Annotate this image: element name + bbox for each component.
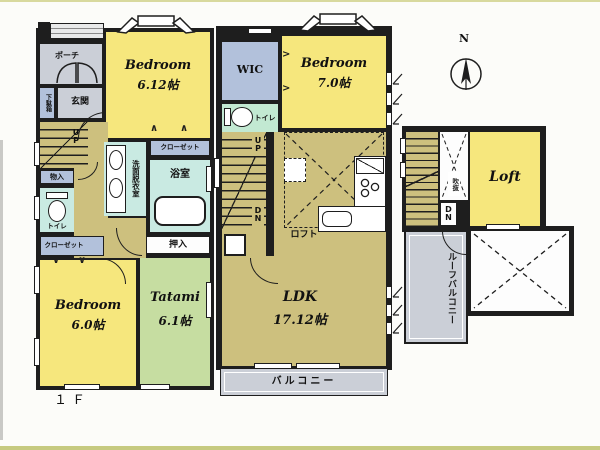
- casement-swing-icon: [392, 284, 404, 340]
- window: [34, 196, 40, 220]
- bedroom-612-size: 6.12帖: [112, 78, 204, 94]
- void-label: 吹抜: [448, 172, 460, 196]
- closet-1f-top-label: クローゼット: [150, 140, 210, 156]
- window: [206, 166, 212, 192]
- washroom-label: 洗面脱衣室: [128, 146, 142, 212]
- bay-window-icon: [112, 13, 200, 35]
- closet-1f-side-label: クローゼット: [42, 237, 86, 255]
- scan-edge-top: [0, 0, 600, 2]
- scan-edge-bottom: [0, 446, 600, 450]
- window: [386, 92, 392, 106]
- window: [386, 112, 392, 126]
- loft-dn-label: DN: [442, 203, 455, 225]
- stairs-2f-dn: DN: [252, 204, 264, 226]
- closet-door-mark: ∧: [150, 124, 158, 134]
- bedroom-70-name: Bedroom: [288, 56, 380, 72]
- compass-north-label: N: [452, 32, 476, 46]
- toilet-1f-label: トイレ: [40, 222, 74, 231]
- toilet-tank-icon: [46, 192, 68, 199]
- kitchen-sink-icon: [322, 211, 352, 227]
- window: [386, 286, 392, 299]
- range-hood-icon: [356, 158, 384, 174]
- stairs-loft: [406, 132, 438, 226]
- toilet-2f-label: トイレ: [252, 112, 278, 124]
- bathtub-icon: [154, 196, 206, 226]
- window: [34, 338, 40, 366]
- floor-plan: ポーチ 下駄箱 玄関 Bedroom 6.12帖 ∧ ∧ UP 物入 トイレ ク…: [0, 0, 600, 450]
- entrance-label: 玄関: [60, 95, 100, 109]
- floor1-label: １Ｆ: [48, 392, 96, 410]
- toilet-bowl-icon: [48, 200, 66, 222]
- roof-balcony-label-right: ルーフ: [414, 252, 458, 279]
- closet-door-mark: ∨: [78, 256, 86, 266]
- bathroom-label: 浴室: [152, 168, 208, 182]
- ldk-size: 17.12帖: [240, 312, 360, 330]
- sink-icon: [109, 150, 123, 170]
- bedroom-60-size: 6.0帖: [44, 318, 132, 334]
- window: [206, 282, 212, 318]
- lower-roof-x-icon: [471, 231, 569, 311]
- ldk-name: LDK: [240, 288, 360, 306]
- closet-door-mark: ∨: [52, 256, 60, 266]
- closet-door-mark: ∧: [180, 124, 188, 134]
- closet-door-mark: >: [282, 84, 290, 94]
- window: [248, 28, 272, 34]
- sliding-door: [254, 363, 292, 369]
- window: [486, 224, 520, 230]
- window: [64, 384, 100, 390]
- bay-window-icon: [294, 11, 382, 33]
- approach-wall: [38, 22, 50, 40]
- window: [386, 72, 392, 86]
- toilet-tank-icon: [224, 108, 231, 126]
- tatami-size: 6.1帖: [142, 314, 208, 330]
- stairs-2f-up: UP: [252, 134, 264, 156]
- oshiire-label: 押入: [146, 236, 210, 254]
- window: [386, 322, 392, 335]
- window: [140, 384, 170, 390]
- storage-1f-label: 物入: [40, 170, 74, 184]
- bedroom-70-size: 7.0帖: [288, 76, 380, 92]
- balcony-2f-label: バルコニー: [224, 373, 384, 391]
- stove-icon: [356, 176, 384, 202]
- tatami-name: Tatami: [142, 290, 208, 306]
- wic-label: WIC: [222, 62, 278, 78]
- shoe-cabinet-label: 下駄箱: [41, 89, 53, 117]
- window: [386, 304, 392, 317]
- entrance-door-icon: [54, 58, 100, 84]
- bedroom-612-name: Bedroom: [112, 58, 204, 74]
- stair-wall: [266, 132, 274, 256]
- sliding-door: [296, 363, 340, 369]
- window: [400, 138, 406, 154]
- loft-room-name: Loft: [472, 168, 538, 186]
- fridge-box: [284, 158, 306, 182]
- window: [34, 142, 40, 166]
- window: [34, 266, 40, 294]
- roof-balcony-label-left: バルコニー: [414, 279, 458, 324]
- scan-edge-left: [0, 140, 3, 440]
- closet-door-mark: >: [282, 50, 290, 60]
- window: [400, 162, 406, 178]
- window: [214, 158, 220, 188]
- approach-steps: [50, 23, 104, 39]
- sink-icon: [109, 178, 123, 198]
- toilet-bowl-icon: [231, 107, 253, 127]
- casement-swing-icon: [392, 70, 404, 128]
- bedroom-60-name: Bedroom: [44, 298, 132, 314]
- washer-box: [224, 234, 246, 256]
- roof-balcony-label: ルーフ バルコニー: [414, 248, 458, 328]
